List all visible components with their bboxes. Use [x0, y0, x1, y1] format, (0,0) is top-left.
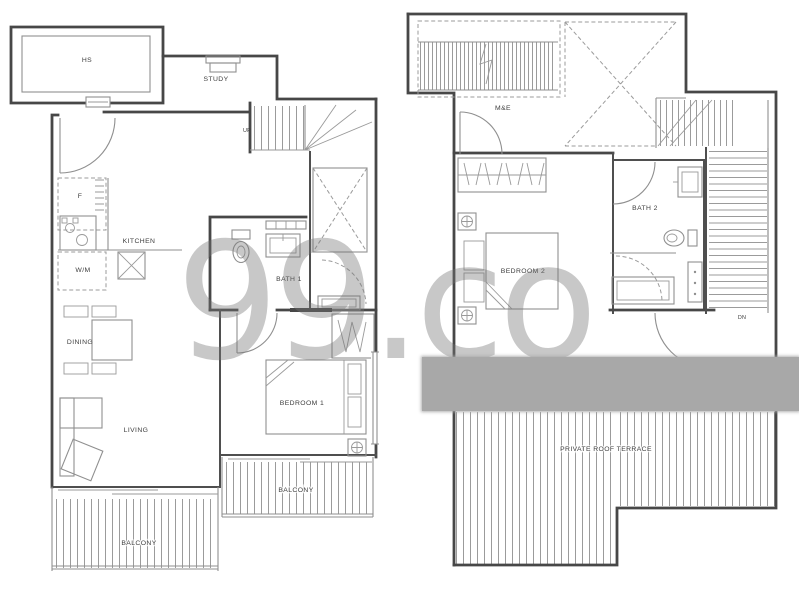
fridge-label: F: [78, 193, 83, 200]
room-label-kitchen: KITCHEN: [123, 238, 156, 245]
bath2-cabinet-dot-3: [694, 293, 696, 295]
hob-knob-2: [73, 218, 78, 223]
bath1-shelf-ticks: [276, 221, 296, 229]
room-label-bath1: BATH 1: [276, 276, 302, 283]
shower2-door-arc: [616, 256, 662, 302]
dining-chair-2: [92, 306, 116, 317]
floor2-outer-bottom: [454, 410, 776, 565]
basin2-inner: [682, 172, 698, 192]
floorplan-linework: HS STUDY UP F KITCHEN W/M BATH 1 DINING …: [0, 0, 799, 592]
bath2-walls: [613, 160, 704, 310]
room-label-balcony-living: BALCONY: [121, 540, 156, 547]
stairs-down-label: DN: [738, 315, 746, 321]
stairs-up-label: UP: [243, 128, 251, 134]
room-label-balcony-bedroom: BALCONY: [278, 487, 313, 494]
dining-table-icon: [92, 320, 132, 360]
study-chair-icon: [210, 63, 236, 72]
room-label-bedroom2: BEDROOM 2: [501, 268, 545, 275]
room-label-roof-terrace: PRIVATE ROOF TERRACE: [560, 446, 652, 453]
kitchen-vent-dashes: [95, 180, 104, 210]
bed2-blanket-fold: [486, 282, 512, 309]
void-dashed-cross: [565, 22, 676, 146]
mne-break-symbol: [480, 44, 492, 84]
toilet2-bowl-inner: [667, 234, 677, 242]
hall-wall: [104, 103, 250, 152]
hob-burner-2: [77, 235, 88, 246]
bedroom1-door-arc: [237, 313, 277, 353]
hs-room-inner-face: [22, 36, 150, 92]
bed2-side-unit-1: [464, 241, 484, 270]
left-outer-wall: [52, 115, 58, 487]
washer-label: W/M: [75, 267, 90, 274]
wardrobe2-hangers: [464, 163, 544, 185]
mne-dashed-outline: [418, 21, 560, 97]
room-label-mne: M&E: [495, 105, 511, 112]
room-label-living: LIVING: [124, 427, 149, 434]
toilet1-bowl: [233, 242, 249, 263]
mne-hatch-bounds: [418, 42, 558, 90]
sofa-cushion: [61, 439, 103, 481]
bathtub1-inner: [322, 299, 356, 307]
toilet1-cistern: [232, 230, 250, 239]
bath2-cabinet-dot-2: [694, 282, 696, 284]
living-sliding-door: [58, 490, 218, 494]
wardrobe1-hanger-zigzag: [338, 320, 366, 352]
floor2-plan: M&E BEDROOM 2 BATH 2 DN PRIVATE ROOF TER…: [408, 14, 776, 565]
hall-door-arc: [460, 112, 502, 154]
room-label-dining: DINING: [67, 339, 93, 346]
dining-chair-1: [64, 306, 88, 317]
bedroom1-sliding-door: [228, 459, 372, 462]
kitchen-sink-cross: [118, 252, 145, 279]
room-label-hs: HS: [82, 57, 92, 64]
dining-chair-4: [92, 363, 116, 374]
bath2-cabinet-dot-1: [694, 271, 696, 273]
stair-winder-lines: [305, 105, 372, 150]
study-outer-wall: [163, 56, 376, 99]
room-label-bedroom1: BEDROOM 1: [280, 400, 324, 407]
dining-chair-3: [64, 363, 88, 374]
floorplan-image: HS STUDY UP F KITCHEN W/M BATH 1 DINING …: [0, 0, 799, 592]
balcony-living-railing: [52, 487, 218, 571]
censor-band: [422, 357, 799, 411]
stair2-winder-lines: [658, 100, 712, 146]
toilet2-cistern: [688, 230, 697, 246]
entry-door-arc: [60, 118, 115, 173]
bed2-side-unit-2: [464, 273, 484, 302]
shower1-door-arc: [322, 260, 366, 304]
bed1-pillow-1: [348, 364, 361, 394]
sofa-seat: [60, 398, 102, 428]
bath1-walls: [210, 217, 306, 310]
bed1-pillow-2: [348, 397, 361, 427]
toilet1-bowl-inner: [237, 246, 245, 258]
sofa-back: [60, 398, 74, 476]
ac-ledge-cross: [313, 168, 367, 252]
hob-knob-1: [62, 218, 67, 223]
hob-burner-1: [66, 224, 75, 233]
shower2-tray-inner: [617, 281, 669, 300]
bed1-blanket-fold: [266, 360, 294, 386]
bathtub1-icon: [318, 296, 360, 310]
room-label-study: STUDY: [203, 76, 228, 83]
bath2-door-arc: [613, 162, 655, 204]
room-label-bath2: BATH 2: [632, 205, 658, 212]
floor2-outer-top-right: [408, 14, 776, 357]
floor1-plan: HS STUDY UP F KITCHEN W/M BATH 1 DINING …: [11, 27, 381, 571]
